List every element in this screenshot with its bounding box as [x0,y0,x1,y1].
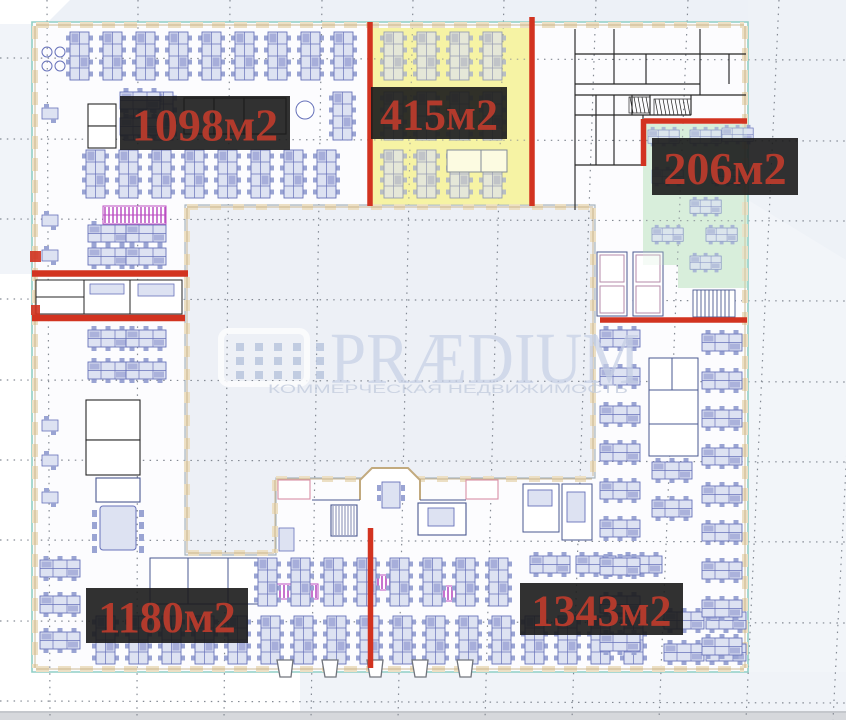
svg-text:КОММЕРЧЕСКАЯ НЕДВИЖИМОСТЬ: КОММЕРЧЕСКАЯ НЕДВИЖИМОСТЬ [268,384,628,396]
svg-text:1098м2: 1098м2 [132,100,278,151]
svg-text:206м2: 206м2 [663,143,786,194]
svg-text:1180м2: 1180м2 [98,593,236,642]
svg-text:1343м2: 1343м2 [532,587,672,636]
svg-text:415м2: 415м2 [380,91,498,140]
